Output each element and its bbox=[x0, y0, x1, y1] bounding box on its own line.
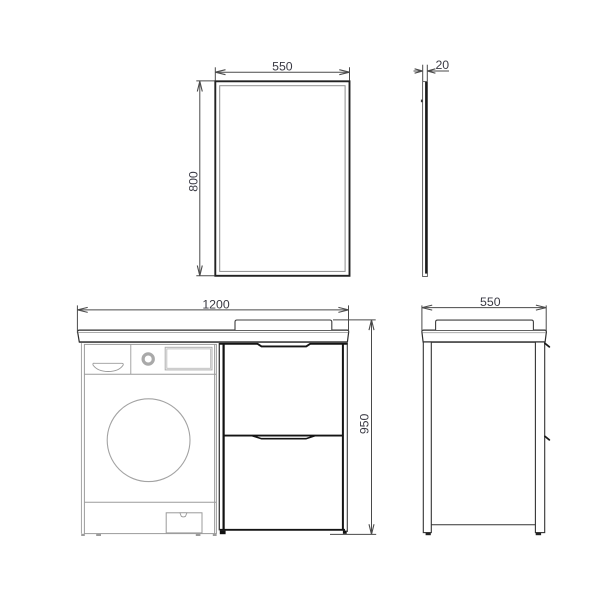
svg-text:950: 950 bbox=[357, 413, 371, 434]
svg-text:1200: 1200 bbox=[202, 297, 230, 311]
svg-text:550: 550 bbox=[480, 295, 501, 309]
svg-text:800: 800 bbox=[187, 171, 201, 192]
svg-text:550: 550 bbox=[272, 60, 293, 74]
svg-text:20: 20 bbox=[435, 58, 449, 72]
